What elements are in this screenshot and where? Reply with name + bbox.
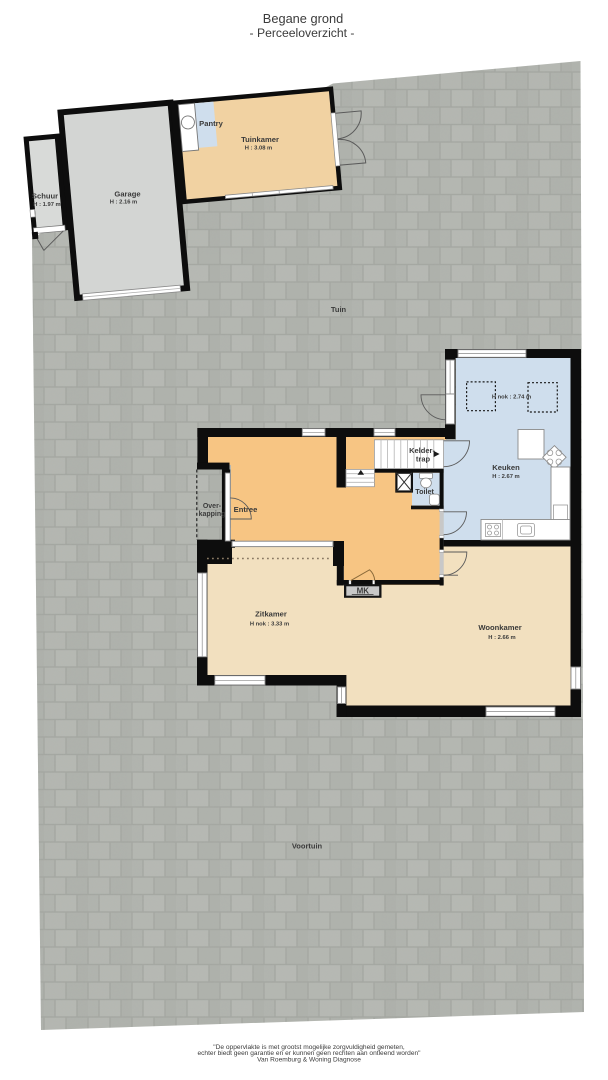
svg-text:H nok : 2.74 m: H nok : 2.74 m xyxy=(492,395,531,401)
svg-text:H nok : 3.33 m: H nok : 3.33 m xyxy=(250,621,289,627)
svg-text:H : 2.67 m: H : 2.67 m xyxy=(492,474,519,480)
svg-text:H : 3.08 m: H : 3.08 m xyxy=(245,146,272,152)
svg-text:Garage: Garage xyxy=(114,190,140,199)
svg-text:H : 2.16 m: H : 2.16 m xyxy=(110,199,137,205)
svg-text:H : 1.97 m: H : 1.97 m xyxy=(33,202,60,208)
svg-text:Keuken: Keuken xyxy=(492,463,520,472)
svg-text:Begane grond: Begane grond xyxy=(263,11,343,26)
svg-text:H : 2.66 m: H : 2.66 m xyxy=(488,635,515,641)
svg-text:Zitkamer: Zitkamer xyxy=(255,610,287,619)
svg-text:Tuinkamer: Tuinkamer xyxy=(241,135,279,144)
svg-text:Over-: Over- xyxy=(203,503,222,510)
svg-text:kapping: kapping xyxy=(199,511,226,518)
svg-text:Toilet: Toilet xyxy=(415,487,434,496)
svg-text:Woonkamer: Woonkamer xyxy=(478,623,521,632)
svg-text:- Perceeloverzicht -: - Perceeloverzicht - xyxy=(250,26,355,40)
svg-text:Pantry: Pantry xyxy=(199,119,223,128)
svg-text:Van Roemburg & Woning Diagnose: Van Roemburg & Woning Diagnose xyxy=(257,1056,361,1063)
svg-text:trap: trap xyxy=(416,455,431,464)
svg-text:Schuur: Schuur xyxy=(32,192,58,201)
svg-text:Voortuin: Voortuin xyxy=(292,842,323,851)
svg-text:Entree: Entree xyxy=(234,505,258,514)
svg-text:Tuin: Tuin xyxy=(331,305,347,314)
